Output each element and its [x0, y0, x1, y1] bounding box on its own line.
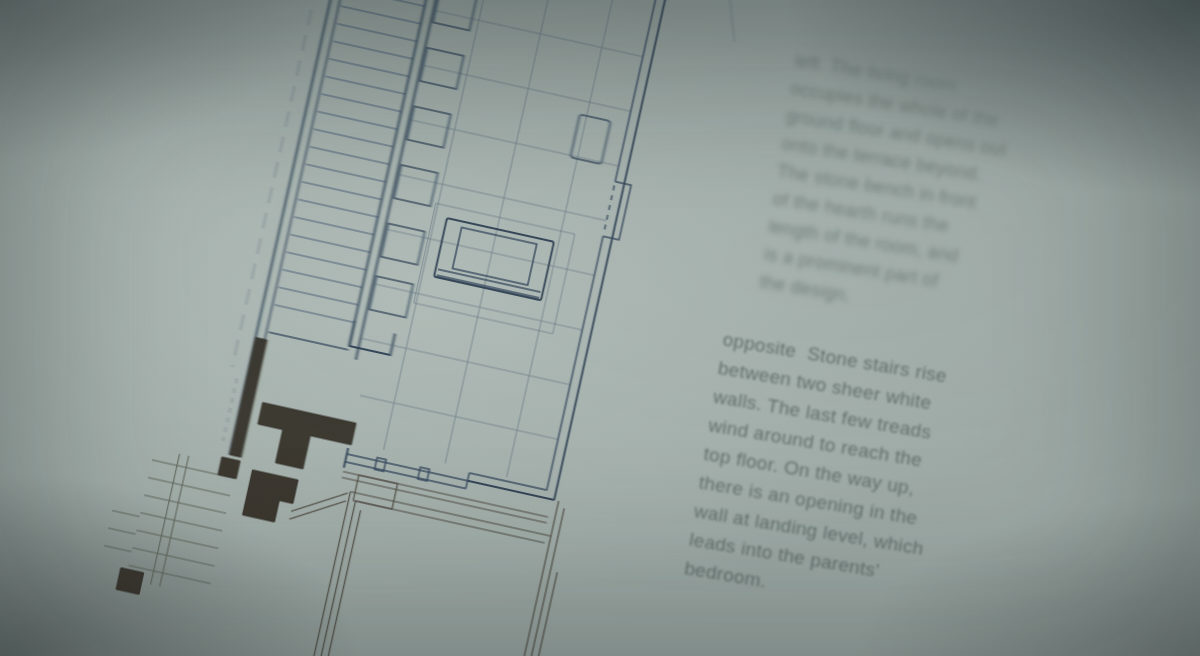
roof-overhang-dashed-line [232, 0, 328, 367]
caption-opposite-label: opposite [721, 328, 798, 361]
boundary-line [700, 0, 757, 42]
planter [353, 475, 397, 509]
caption-opposite-text: Stone stairs rise between two sheer whit… [683, 343, 949, 592]
exterior-steps [96, 436, 241, 609]
stair-treads [275, 0, 433, 323]
floor-tile-grid [338, 0, 655, 486]
book-page-photo: leftThe living room occupies the whole o… [0, 0, 1200, 656]
window-wall [342, 446, 556, 523]
caption-opposite: oppositeStone stairs rise between two sh… [682, 325, 1003, 629]
left-wall [214, 0, 360, 457]
stair-walls [267, 0, 476, 367]
entry-walls [238, 403, 363, 537]
rug [414, 203, 575, 333]
right-wall [545, 0, 674, 501]
sofa-on-rug [414, 203, 575, 333]
caption-left: leftThe living room occupies the whole o… [758, 46, 1040, 333]
caption-left-label: left [793, 50, 821, 74]
caption-left-text: The living room occupies the whole of th… [758, 56, 1008, 306]
